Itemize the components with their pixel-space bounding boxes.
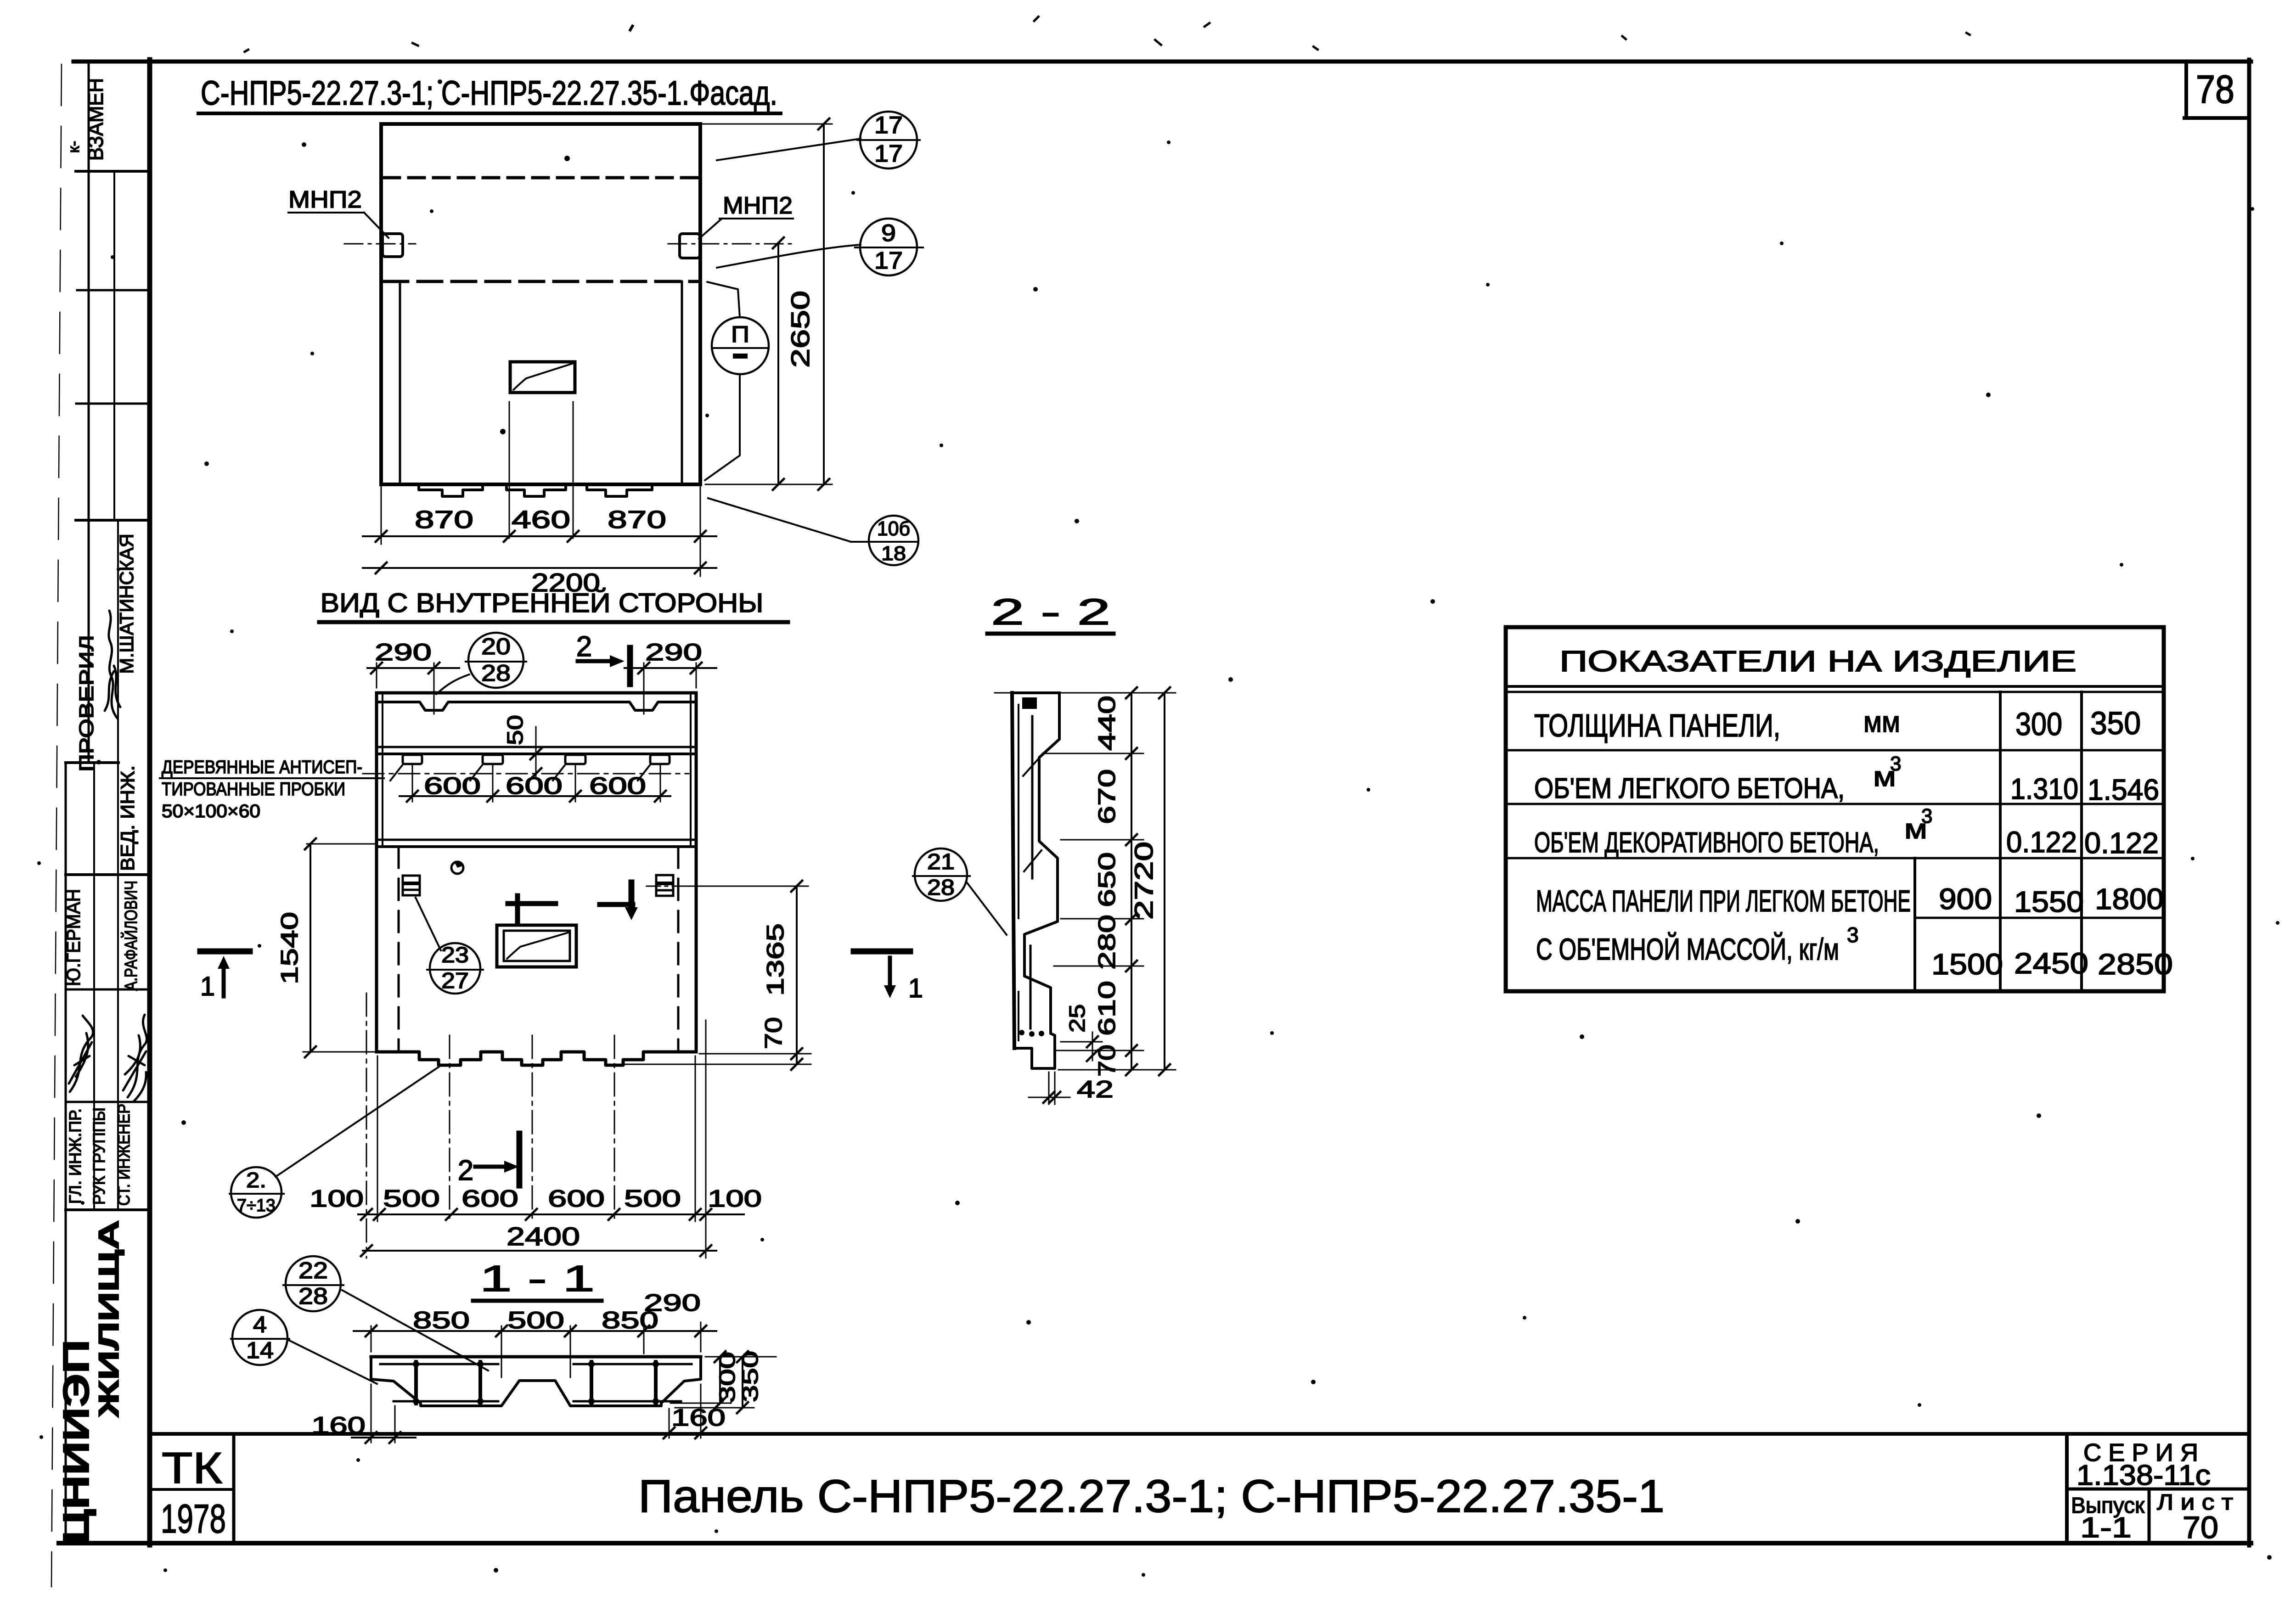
svg-text:ТОЛЩИНА ПАНЕЛИ,: ТОЛЩИНА ПАНЕЛИ, (1534, 708, 1780, 743)
svg-text:1550: 1550 (2014, 885, 2084, 918)
svg-text:2.: 2. (246, 1168, 266, 1192)
svg-text:28: 28 (481, 660, 511, 686)
svg-text:ОБ'ЕМ ДЕКОРАТИВНОГО БЕТОНА,: ОБ'ЕМ ДЕКОРАТИВНОГО БЕТОНА, (1534, 827, 1879, 859)
svg-text:670: 670 (1094, 769, 1120, 824)
svg-text:610: 610 (1094, 981, 1120, 1036)
svg-text:10б: 10б (877, 517, 910, 540)
svg-text:4: 4 (253, 1312, 267, 1337)
svg-text:ЦНИИЭП: ЦНИИЭП (56, 1340, 96, 1544)
svg-text:МНП2: МНП2 (723, 192, 793, 219)
svg-text:ВЕД. ИНЖ.: ВЕД. ИНЖ. (117, 765, 138, 871)
svg-text:П: П (731, 321, 749, 347)
svg-text:С-НПР5-22.27.3-1; С-НПР5-22.27: С-НПР5-22.27.3-1; С-НПР5-22.27.35-1.Фаса… (201, 74, 777, 112)
svg-text:2400: 2400 (506, 1222, 580, 1251)
svg-text:ВЗАМЕН: ВЗАМЕН (84, 78, 107, 161)
svg-text:500: 500 (383, 1185, 440, 1212)
svg-text:70: 70 (2183, 1510, 2218, 1545)
svg-text:18: 18 (881, 542, 906, 565)
svg-text:ОБ'ЕМ ЛЕГКОГО БЕТОНА,: ОБ'ЕМ ЛЕГКОГО БЕТОНА, (1534, 773, 1845, 804)
svg-text:600: 600 (424, 773, 481, 799)
svg-text:600: 600 (461, 1185, 518, 1212)
svg-text:27: 27 (441, 969, 469, 993)
svg-text:500: 500 (624, 1185, 681, 1212)
svg-text:1.138-11с: 1.138-11с (2077, 1460, 2211, 1491)
svg-text:600: 600 (506, 773, 563, 799)
svg-text:100: 100 (708, 1185, 762, 1212)
svg-text:МАССА ПАНЕЛИ ПРИ ЛЕГКОМ БЕТОНЕ: МАССА ПАНЕЛИ ПРИ ЛЕГКОМ БЕТОНЕ (1536, 884, 1911, 918)
svg-text:300: 300 (715, 1352, 740, 1403)
svg-text:290: 290 (644, 1290, 701, 1316)
svg-text:300: 300 (2015, 706, 2062, 742)
svg-text:к-: к- (65, 141, 83, 153)
svg-text:ДЕРЕВЯННЫЕ АНТИСЕП-: ДЕРЕВЯННЫЕ АНТИСЕП- (162, 757, 362, 777)
svg-text:1540: 1540 (276, 912, 303, 984)
svg-text:17: 17 (874, 112, 903, 139)
svg-text:1 - 1: 1 - 1 (480, 1258, 595, 1299)
svg-text:25: 25 (1065, 1004, 1090, 1033)
svg-text:Панель С-НПР5-22.27.3-1; С-Н: Панель С-НПР5-22.27.3-1; С-НПР5-22.27.35… (638, 1471, 1665, 1522)
svg-text:14: 14 (246, 1337, 274, 1363)
svg-text:28: 28 (298, 1283, 328, 1309)
svg-text:7÷13: 7÷13 (237, 1196, 276, 1215)
svg-text:600: 600 (589, 773, 646, 799)
svg-text:ВИД С ВНУТРЕННЕЙ СТОРОНЫ: ВИД С ВНУТРЕННЕЙ СТОРОНЫ (321, 588, 764, 618)
svg-text:23: 23 (441, 943, 469, 967)
svg-text:160: 160 (671, 1404, 726, 1431)
svg-text:870: 870 (415, 506, 473, 534)
svg-text:1365: 1365 (762, 923, 789, 996)
svg-text:650: 650 (1094, 852, 1120, 907)
svg-text:ТИРОВАННЫЕ ПРОБКИ: ТИРОВАННЫЕ ПРОБКИ (162, 779, 345, 799)
svg-text:Ю.ГЕРМАН: Ю.ГЕРМАН (62, 889, 84, 986)
svg-text:А.РАФАЙЛОВИЧ: А.РАФАЙЛОВИЧ (120, 881, 141, 991)
svg-text:50: 50 (503, 715, 528, 745)
svg-text:1500: 1500 (1931, 948, 2003, 981)
svg-text:ЖИЛИЩА: ЖИЛИЩА (93, 1220, 125, 1418)
svg-text:3: 3 (1921, 805, 1932, 827)
svg-text:2650: 2650 (786, 291, 815, 368)
svg-text:440: 440 (1094, 696, 1120, 751)
svg-text:1800: 1800 (2095, 882, 2164, 916)
svg-text:ТК: ТК (162, 1444, 222, 1493)
svg-text:600: 600 (548, 1185, 605, 1212)
svg-text:1.310: 1.310 (2010, 772, 2078, 805)
svg-text:78: 78 (2196, 67, 2234, 112)
svg-text:мм: мм (1863, 705, 1900, 738)
svg-text:ПОКАЗАТЕЛИ НА ИЗДЕЛИЕ: ПОКАЗАТЕЛИ НА ИЗДЕЛИЕ (1559, 645, 2077, 678)
svg-text:280: 280 (1094, 915, 1120, 970)
svg-text:28: 28 (927, 876, 955, 900)
svg-text:0.122: 0.122 (2084, 826, 2159, 859)
svg-text:РУК ГРУППЫ: РУК ГРУППЫ (90, 1107, 108, 1205)
svg-text:СТ. ИНЖЕНЕР: СТ. ИНЖЕНЕР (114, 1104, 133, 1206)
svg-text:1: 1 (908, 973, 923, 1003)
svg-text:20: 20 (481, 634, 511, 659)
svg-text:460: 460 (512, 506, 570, 534)
svg-text:ГЛ. ИНЖ.ПР.: ГЛ. ИНЖ.ПР. (66, 1108, 84, 1204)
svg-text:21: 21 (927, 850, 955, 874)
svg-text:0.122: 0.122 (2006, 826, 2077, 859)
svg-text:290: 290 (645, 639, 702, 666)
svg-text:1978: 1978 (161, 1496, 226, 1541)
svg-text:2 - 2: 2 - 2 (991, 591, 1110, 632)
svg-text:1-1: 1-1 (2080, 1512, 2132, 1544)
svg-text:17: 17 (874, 140, 903, 167)
svg-text:ПРОВЕРИЛ: ПРОВЕРИЛ (75, 635, 98, 772)
svg-text:1.546: 1.546 (2088, 773, 2159, 806)
svg-text:2850: 2850 (2098, 948, 2173, 981)
svg-text:2: 2 (576, 631, 592, 663)
svg-text:850: 850 (413, 1307, 470, 1334)
svg-text:17: 17 (874, 247, 903, 274)
svg-text:500: 500 (507, 1307, 564, 1334)
svg-text:2450: 2450 (2014, 947, 2088, 980)
svg-text:2720: 2720 (1129, 842, 1158, 920)
svg-text:50×100×60: 50×100×60 (162, 801, 260, 821)
svg-text:3: 3 (1847, 923, 1859, 947)
svg-text:3: 3 (1890, 753, 1901, 775)
svg-text:2: 2 (458, 1155, 473, 1186)
svg-text:100: 100 (310, 1185, 364, 1212)
svg-text:МНП2: МНП2 (288, 186, 362, 213)
svg-text:70: 70 (760, 1017, 787, 1049)
svg-text:С ОБ'ЕМНОЙ МАССОЙ, кг/м: С ОБ'ЕМНОЙ МАССОЙ, кг/м (1536, 932, 1839, 966)
svg-text:М.ШАТИНСКАЯ: М.ШАТИНСКАЯ (116, 534, 137, 674)
svg-text:22: 22 (298, 1258, 328, 1283)
svg-text:160: 160 (311, 1412, 366, 1439)
svg-text:870: 870 (608, 506, 666, 534)
svg-text:350: 350 (738, 1351, 763, 1402)
svg-text:42: 42 (1077, 1076, 1114, 1103)
svg-text:1: 1 (200, 972, 215, 1001)
svg-text:9: 9 (881, 220, 896, 247)
svg-text:290: 290 (375, 639, 432, 666)
svg-text:350: 350 (2090, 705, 2141, 741)
svg-text:900: 900 (1939, 882, 1992, 916)
